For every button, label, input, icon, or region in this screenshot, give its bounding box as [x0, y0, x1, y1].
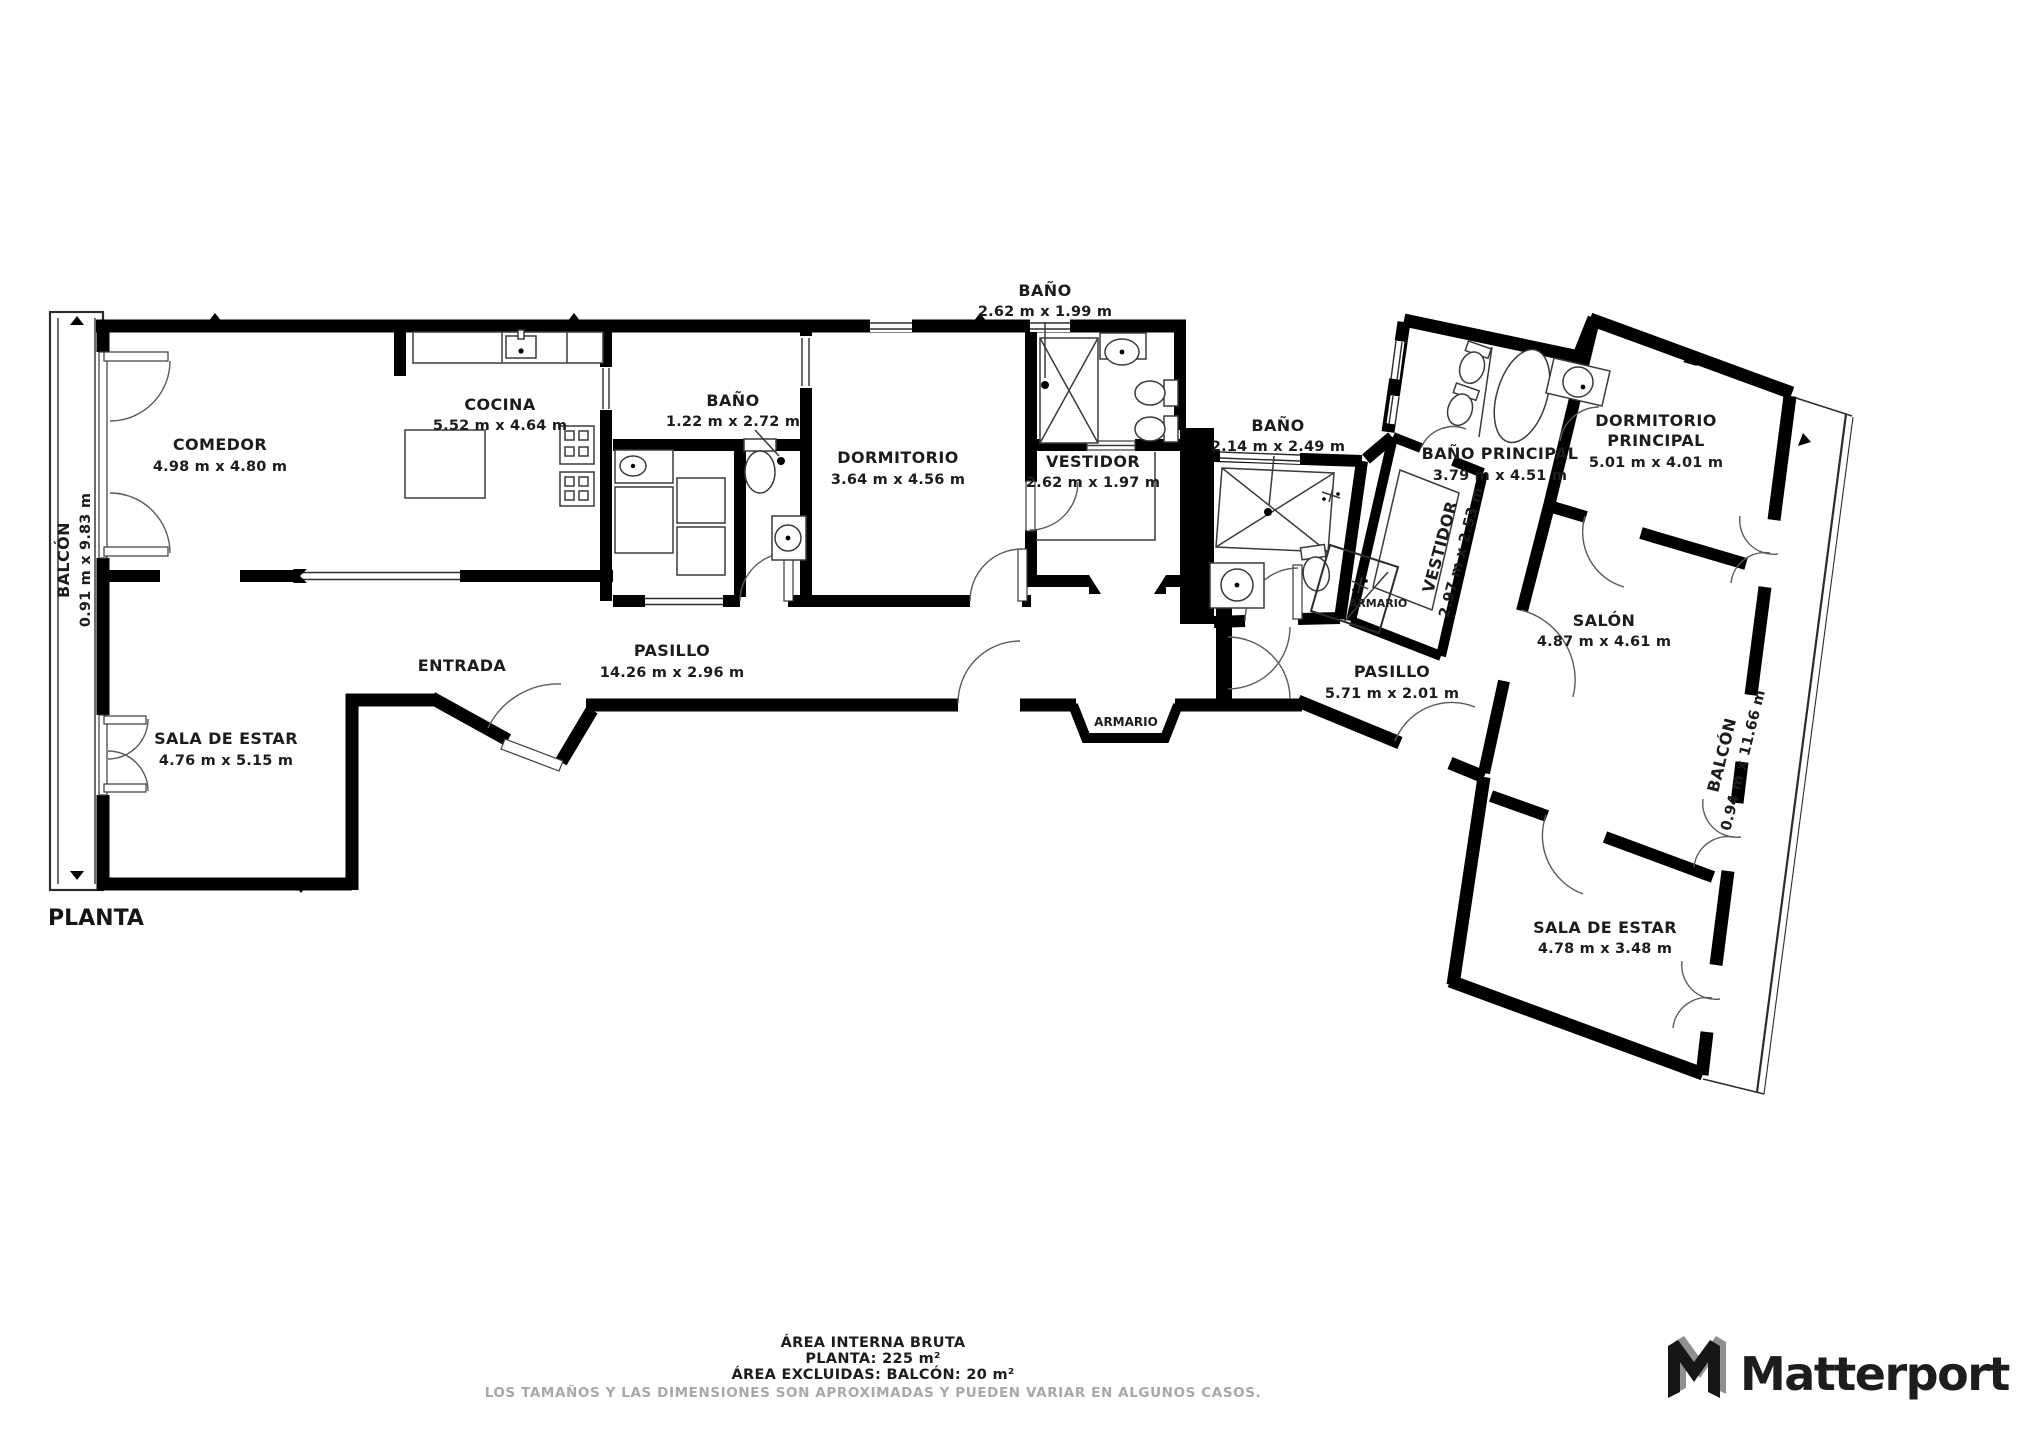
floor-plan-canvas: BALCÓN 0.91 m x 9.83 m COMEDOR 4.98 m x …: [0, 0, 2036, 1440]
bathroom-small-fixtures: [744, 439, 806, 560]
room-label-sala-izquierda: SALA DE ESTAR 4.76 m x 5.15 m: [154, 729, 298, 769]
svg-text:2.14 m x 2.49 m: 2.14 m x 2.49 m: [1211, 439, 1345, 455]
svg-text:14.26 m x 2.96 m: 14.26 m x 2.96 m: [600, 665, 745, 681]
svg-text:3.64 m x 4.56 m: 3.64 m x 4.56 m: [831, 472, 965, 488]
svg-text:ARMARIO: ARMARIO: [1349, 597, 1407, 610]
room-label-armario-central: ARMARIO: [1349, 597, 1407, 610]
room-label-salon: SALÓN 4.87 m x 4.61 m: [1537, 611, 1671, 650]
svg-text:5.71 m x 2.01 m: 5.71 m x 2.01 m: [1325, 686, 1459, 702]
footer-disclaimer: LOS TAMAÑOS Y LAS DIMENSIONES SON APROXI…: [485, 1384, 1262, 1401]
svg-text:ENTRADA: ENTRADA: [418, 656, 507, 675]
svg-text:4.76 m x 5.15 m: 4.76 m x 5.15 m: [159, 753, 293, 769]
outer-walls: [96, 318, 1792, 1075]
svg-text:SALA DE ESTAR: SALA DE ESTAR: [154, 729, 298, 748]
svg-text:5.52 m x 4.64 m: 5.52 m x 4.64 m: [433, 418, 567, 434]
room-label-dormitorio-principal: DORMITORIO PRINCIPAL 5.01 m x 4.01 m: [1589, 411, 1723, 471]
plan-title: PLANTA: [48, 906, 144, 931]
room-label-pasillo-2: PASILLO 5.71 m x 2.01 m: [1325, 662, 1459, 702]
utility-nook-fixtures: [615, 450, 725, 575]
room-label-entrada: ENTRADA: [418, 656, 507, 675]
svg-text:3.79 m x 4.51 m: 3.79 m x 4.51 m: [1433, 468, 1567, 484]
svg-text:BAÑO: BAÑO: [706, 391, 759, 410]
room-label-bano-cocina: BAÑO 1.22 m x 2.72 m: [666, 391, 800, 430]
room-label-comedor: COMEDOR 4.98 m x 4.80 m: [153, 435, 287, 475]
room-label-armario-pasillo: ARMARIO: [1094, 715, 1158, 729]
svg-text:2.62 m x 1.97 m: 2.62 m x 1.97 m: [1026, 475, 1160, 491]
svg-text:PRINCIPAL: PRINCIPAL: [1607, 431, 1705, 450]
footer-planta-area: PLANTA: 225 m²: [805, 1351, 940, 1367]
svg-text:DORMITORIO: DORMITORIO: [1595, 411, 1716, 430]
svg-text:PASILLO: PASILLO: [634, 641, 710, 660]
svg-text:1.22 m x 2.72 m: 1.22 m x 2.72 m: [666, 414, 800, 430]
svg-text:COCINA: COCINA: [464, 395, 535, 414]
svg-text:SALA DE ESTAR: SALA DE ESTAR: [1533, 918, 1677, 937]
svg-text:4.87 m x 4.61 m: 4.87 m x 4.61 m: [1537, 634, 1671, 650]
svg-text:BAÑO: BAÑO: [1251, 416, 1304, 435]
room-name: BALCÓN: [54, 522, 73, 598]
room-label-sala-derecha: SALA DE ESTAR 4.78 m x 3.48 m: [1533, 918, 1677, 957]
bathroom-top-fixtures: [1040, 333, 1178, 443]
room-label-pasillo: PASILLO 14.26 m x 2.96 m: [600, 641, 745, 681]
floor-plan-page: BALCÓN 0.91 m x 9.83 m COMEDOR 4.98 m x …: [0, 0, 2036, 1440]
svg-text:5.01 m x 4.01 m: 5.01 m x 4.01 m: [1589, 455, 1723, 471]
matterport-logo: Matterport: [1668, 1336, 2009, 1401]
room-label-vestidor: VESTIDOR 2.62 m x 1.97 m: [1026, 452, 1160, 491]
brand-wordmark: Matterport: [1740, 1347, 2009, 1401]
footer-excluded-area: ÁREA EXCLUIDAS: BALCÓN: 20 m²: [731, 1365, 1014, 1383]
footer-area-title: ÁREA INTERNA BRUTA: [781, 1334, 966, 1351]
balcony-left-outline: [50, 312, 103, 890]
svg-text:BAÑO PRINCIPAL: BAÑO PRINCIPAL: [1422, 444, 1579, 463]
svg-text:BAÑO: BAÑO: [1018, 281, 1071, 300]
matterport-logo-icon: [1668, 1336, 1726, 1398]
room-label-dormitorio: DORMITORIO 3.64 m x 4.56 m: [831, 448, 965, 488]
footer: ÁREA INTERNA BRUTA PLANTA: 225 m² ÁREA E…: [485, 1334, 1262, 1401]
svg-text:SALÓN: SALÓN: [1573, 611, 1636, 630]
room-label-balcon-izquierdo: BALCÓN 0.91 m x 9.83 m: [54, 493, 94, 627]
svg-text:DORMITORIO: DORMITORIO: [837, 448, 958, 467]
room-label-bano-central: BAÑO 2.14 m x 2.49 m: [1211, 416, 1345, 455]
bathroom-central-fixtures: [1210, 468, 1340, 608]
room-label-bano-dormitorio: BAÑO 2.62 m x 1.99 m: [978, 281, 1112, 320]
room-label-cocina: COCINA 5.52 m x 4.64 m: [433, 395, 567, 434]
room-label-balcon-derecho: BALCÓN 0.94 m x 11.66 m: [1695, 683, 1769, 833]
svg-text:ARMARIO: ARMARIO: [1094, 715, 1158, 729]
svg-text:COMEDOR: COMEDOR: [173, 435, 267, 454]
room-label-vestidor-principal: VESTIDOR 2.97 m x 2.53 m: [1413, 479, 1486, 619]
room-dims: 0.91 m x 9.83 m: [78, 493, 94, 627]
svg-text:VESTIDOR: VESTIDOR: [1046, 452, 1140, 471]
svg-text:2.62 m x 1.99 m: 2.62 m x 1.99 m: [978, 304, 1112, 320]
svg-text:PASILLO: PASILLO: [1354, 662, 1430, 681]
svg-text:4.78 m x 3.48 m: 4.78 m x 3.48 m: [1538, 941, 1672, 957]
svg-text:4.98 m x 4.80 m: 4.98 m x 4.80 m: [153, 459, 287, 475]
